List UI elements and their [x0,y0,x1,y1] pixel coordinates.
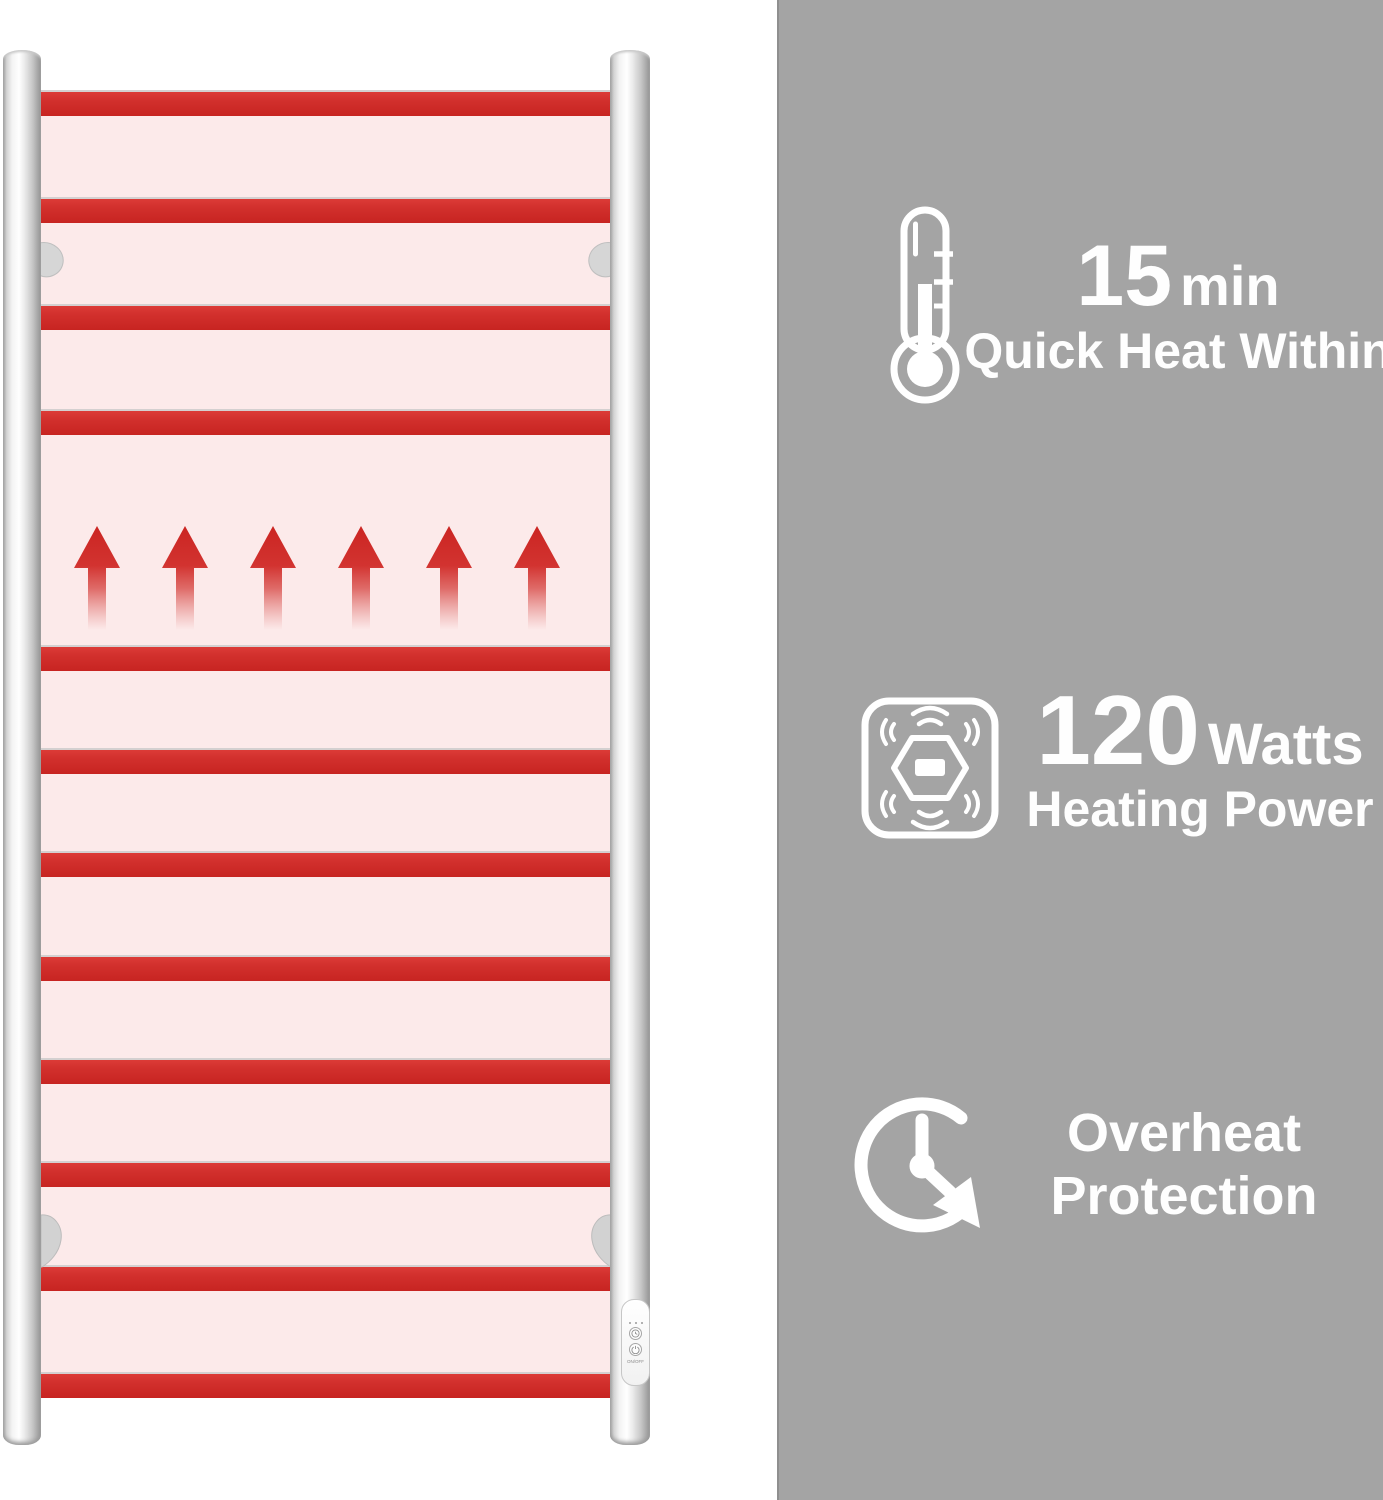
power-button-label: ON/OFF [627,1359,644,1364]
power-icon [631,1345,640,1354]
left-post [3,50,41,1445]
heat-arrows [71,526,563,634]
power-button [629,1343,642,1356]
heated-rung [30,1060,618,1084]
feature-quick-heat: 15 min Quick Heat Within [958,232,1383,378]
heated-rung [30,750,618,774]
heated-rung [30,199,618,223]
feature-value-unit: Watts [1208,712,1364,777]
features-panel: 15 min Quick Heat Within 120 [777,0,1383,1500]
heating-power-icon [860,694,1000,842]
heated-rung [30,1267,618,1291]
feature-value-number: 120 [1036,675,1200,785]
feature-caption-line2: Protection [964,1165,1383,1228]
timer-button [629,1327,642,1340]
feature-caption-line1: Overheat [964,1102,1383,1165]
timer-icon [631,1329,640,1338]
feature-heating-power: 120 Watts Heating Power [980,680,1383,836]
feature-overheat-protection: Overheat Protection [964,1102,1383,1228]
heat-arrow-icon [250,526,296,630]
right-post [610,50,650,1445]
heat-glow-background [38,92,614,1398]
feature-value-unit: min [1180,254,1280,317]
heated-rung [30,957,618,981]
feature-caption: Quick Heat Within [958,324,1383,378]
heat-arrow-icon [162,526,208,630]
feature-value: 15 min [958,232,1383,320]
control-panel: ON/OFF [621,1299,650,1386]
heat-arrow-icon [74,526,120,630]
heated-rung [30,853,618,877]
wall-bracket [40,1212,64,1268]
heat-arrow-icon [426,526,472,630]
heat-arrow-icon [514,526,560,630]
heated-rung [30,92,618,116]
heated-rung [30,1163,618,1187]
thermometer-icon [890,206,960,406]
heated-rung [30,647,618,671]
feature-caption: Heating Power [980,782,1383,836]
product-infographic: ON/OFF 15 min Quick Heat Within [0,0,1383,1500]
heated-rung [30,411,618,435]
wall-bracket [38,240,66,280]
heated-rung [30,306,618,330]
heated-rung [30,1374,618,1398]
heat-arrow-icon [338,526,384,630]
feature-value-number: 15 [1076,228,1172,324]
indicator-lights [629,1322,643,1324]
feature-value: 120 Watts [980,680,1383,780]
